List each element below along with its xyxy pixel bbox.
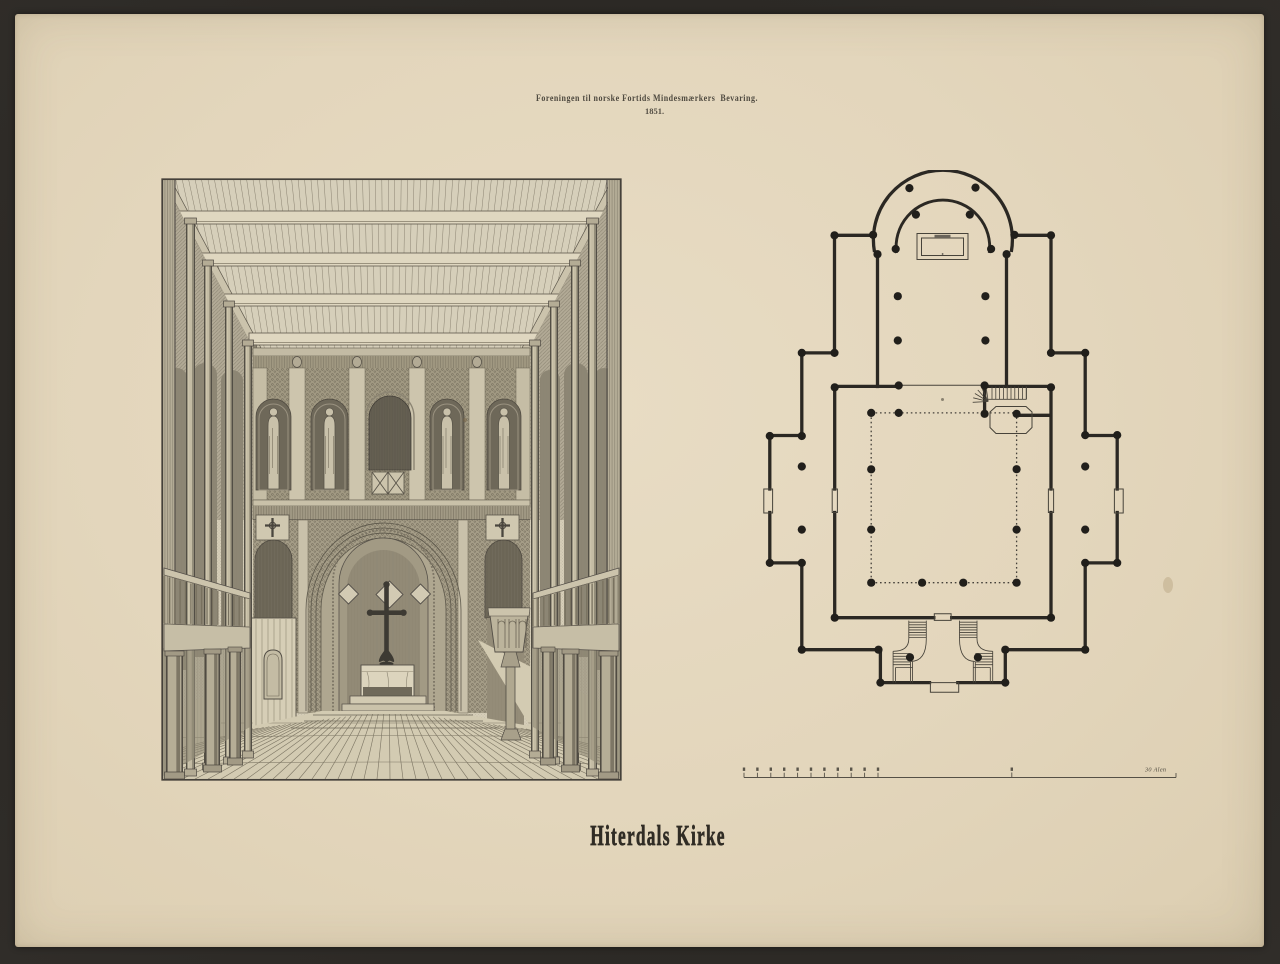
svg-text:30 Alen: 30 Alen [1144,767,1166,774]
